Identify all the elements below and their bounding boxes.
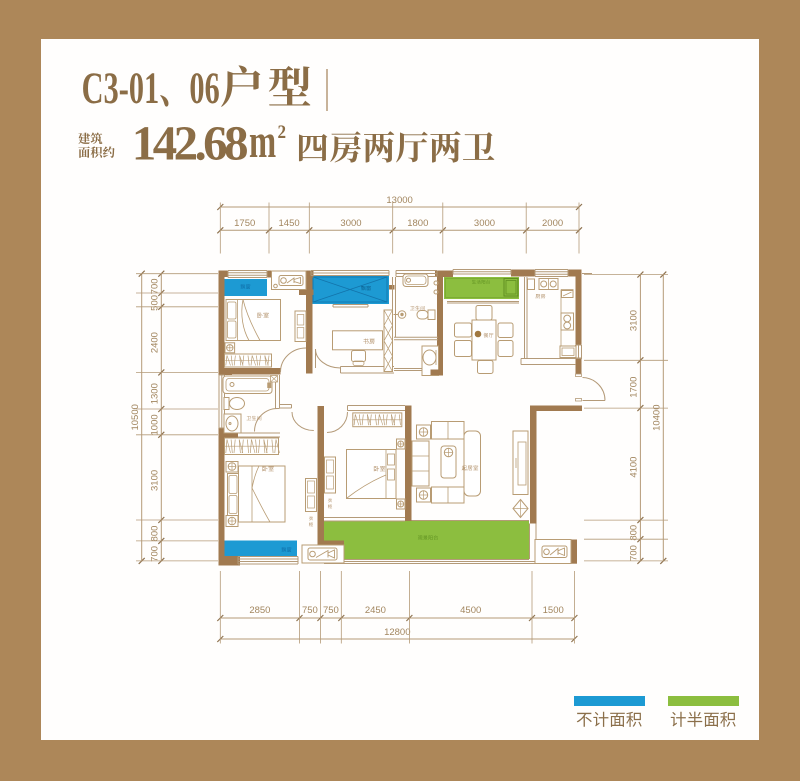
svg-text:13000: 13000 — [386, 195, 412, 206]
svg-text:700: 700 — [150, 546, 161, 562]
svg-text:3100: 3100 — [150, 470, 161, 491]
svg-text:4100: 4100 — [629, 457, 640, 478]
svg-text:1450: 1450 — [279, 218, 300, 229]
svg-text:4500: 4500 — [460, 605, 481, 616]
svg-text:2400: 2400 — [150, 332, 161, 353]
svg-text:2450: 2450 — [365, 605, 386, 616]
svg-text:2000: 2000 — [542, 218, 563, 229]
svg-text:700: 700 — [150, 278, 161, 294]
svg-text:800: 800 — [629, 525, 640, 541]
svg-text:1800: 1800 — [407, 218, 428, 229]
svg-text:1300: 1300 — [150, 383, 161, 404]
svg-text:800: 800 — [150, 526, 161, 542]
svg-text:750: 750 — [302, 605, 318, 616]
svg-text:3000: 3000 — [474, 218, 495, 229]
svg-text:1700: 1700 — [629, 377, 640, 398]
svg-text:12800: 12800 — [384, 627, 410, 638]
svg-text:10500: 10500 — [130, 404, 141, 430]
svg-text:2850: 2850 — [249, 605, 270, 616]
svg-text:500: 500 — [150, 295, 161, 311]
svg-text:700: 700 — [629, 545, 640, 561]
svg-text:3100: 3100 — [629, 310, 640, 331]
svg-text:1000: 1000 — [150, 414, 161, 435]
svg-text:1750: 1750 — [234, 218, 255, 229]
svg-text:750: 750 — [323, 605, 339, 616]
svg-text:3000: 3000 — [340, 218, 361, 229]
svg-text:1500: 1500 — [543, 605, 564, 616]
